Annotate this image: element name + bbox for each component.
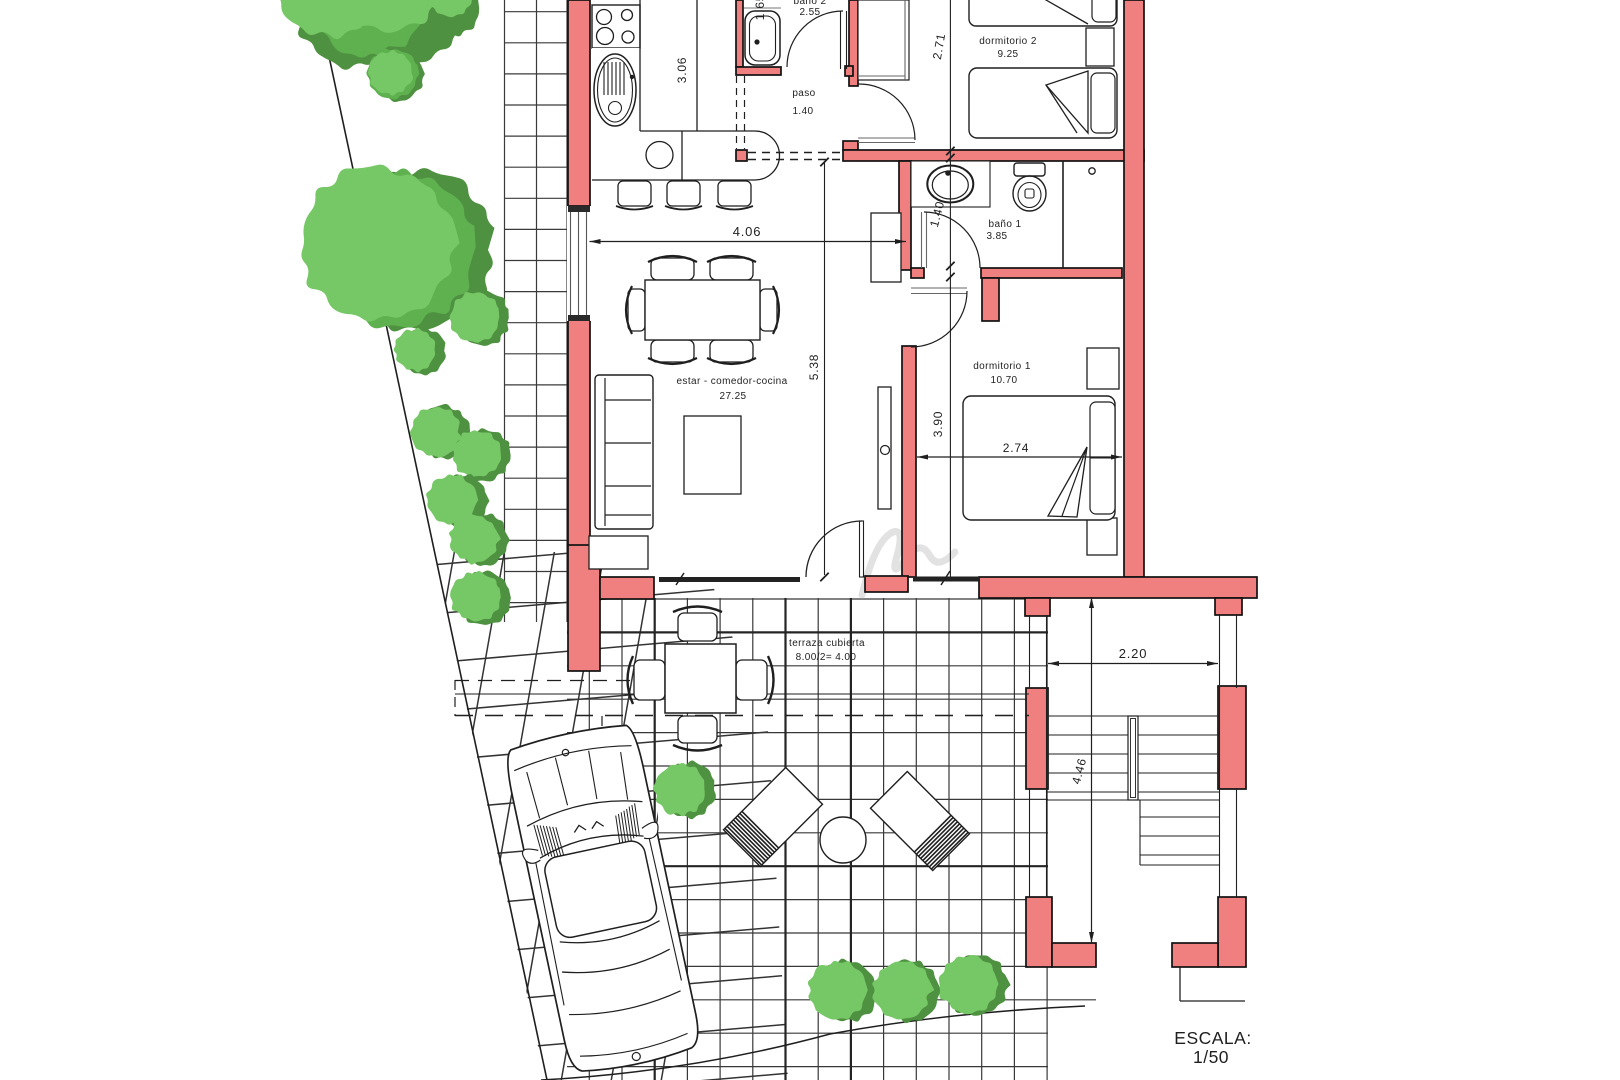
svg-text:4.06: 4.06 [733, 224, 762, 239]
svg-text:3.06: 3.06 [675, 57, 689, 84]
svg-text:8.00/2= 4.00: 8.00/2= 4.00 [796, 652, 857, 663]
svg-text:2.20: 2.20 [1119, 646, 1148, 661]
svg-text:1.40: 1.40 [792, 106, 813, 117]
svg-text:2.74: 2.74 [1003, 441, 1030, 455]
svg-text:1/50: 1/50 [1193, 1047, 1229, 1067]
svg-text:paso: paso [792, 88, 815, 99]
svg-text:2.55: 2.55 [799, 7, 820, 18]
svg-text:5.38: 5.38 [807, 354, 821, 381]
svg-text:estar - comedor-cocina: estar - comedor-cocina [676, 376, 787, 387]
svg-text:ESCALA:: ESCALA: [1174, 1028, 1251, 1048]
svg-text:27.25: 27.25 [719, 391, 746, 402]
svg-text:baño 2: baño 2 [794, 0, 827, 7]
svg-text:dormitorio 1: dormitorio 1 [973, 361, 1031, 372]
svg-text:terraza cubierta: terraza cubierta [789, 638, 865, 649]
svg-text:dormitorio 2: dormitorio 2 [979, 36, 1037, 47]
svg-text:9.25: 9.25 [997, 49, 1018, 60]
svg-text:3.85: 3.85 [986, 231, 1007, 242]
svg-text:10.70: 10.70 [990, 375, 1017, 386]
svg-text:3.90: 3.90 [931, 411, 945, 438]
svg-text:1.65: 1.65 [753, 0, 767, 20]
svg-text:baño 1: baño 1 [989, 219, 1022, 230]
